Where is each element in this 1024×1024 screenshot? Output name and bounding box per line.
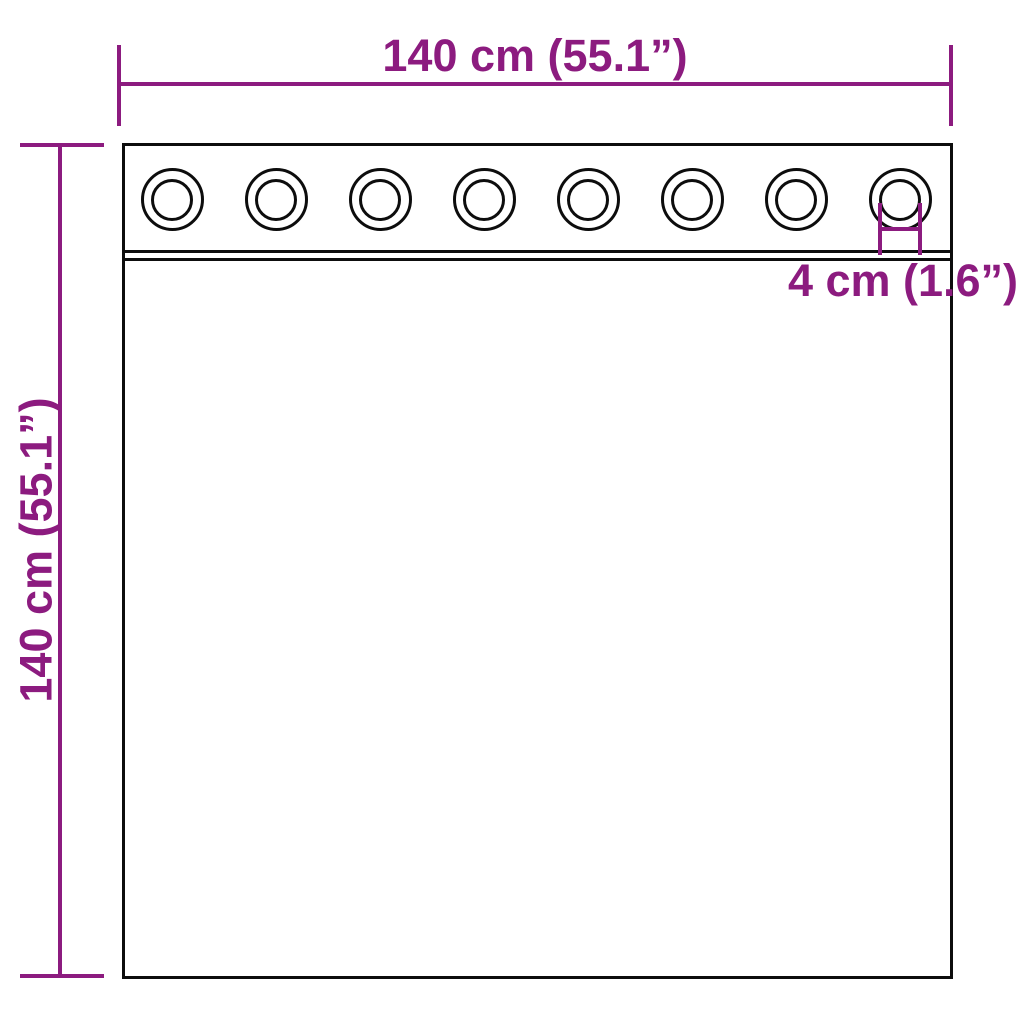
grommet-hole xyxy=(671,179,713,221)
curtain-dimension-diagram: 140 cm (55.1”) 140 cm (55.1”) 4 cm (1.6”… xyxy=(0,0,1024,1024)
width-dimension-tick-left xyxy=(117,45,121,126)
grommet-hole xyxy=(151,179,193,221)
grommet xyxy=(453,168,516,231)
grommet xyxy=(765,168,828,231)
width-dimension-label: 140 cm (55.1”) xyxy=(135,33,935,78)
width-dimension-line xyxy=(117,82,953,86)
height-dimension-tick-top xyxy=(20,143,104,147)
header-band-seam-line-upper xyxy=(122,250,953,253)
grommet xyxy=(557,168,620,231)
grommet xyxy=(661,168,724,231)
grommet-hole xyxy=(359,179,401,221)
grommet xyxy=(349,168,412,231)
grommet-diameter-label: 4 cm (1.6”) xyxy=(703,258,1024,303)
grommet-diameter-bracket-bar xyxy=(878,227,922,231)
height-dimension-tick-bottom xyxy=(20,974,104,978)
grommet-hole xyxy=(567,179,609,221)
grommet-hole xyxy=(775,179,817,221)
width-dimension-tick-right xyxy=(949,45,953,126)
grommet xyxy=(141,168,204,231)
grommet xyxy=(245,168,308,231)
grommet-hole xyxy=(463,179,505,221)
grommet-hole xyxy=(255,179,297,221)
height-dimension-label: 140 cm (55.1”) xyxy=(14,397,59,702)
grommet-hole xyxy=(879,179,921,221)
